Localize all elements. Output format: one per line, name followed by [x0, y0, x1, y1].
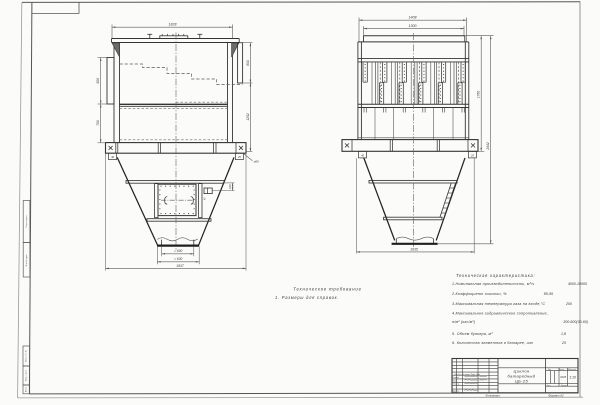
svg-text:Копировал:: Копировал: [486, 394, 501, 398]
svg-text:25: 25 [561, 341, 566, 345]
svg-text:н/м² (кгс/м²): н/м² (кгс/м²) [452, 320, 476, 324]
svg-text:Инв.№: Инв.№ [25, 387, 28, 393]
svg-text:2.Коэффициент очистки, %: 2.Коэффициент очистки, % [451, 292, 507, 296]
svg-text:Утв.: Утв. [453, 392, 457, 394]
svg-text:Масштаб: Масштаб [568, 369, 576, 371]
svg-text:1635: 1635 [410, 247, 418, 251]
svg-text:1828: 1828 [169, 23, 177, 27]
svg-text:600: 600 [96, 78, 100, 84]
svg-text:3.Максимальная температура газ: 3.Максимальная температура газа на входе… [452, 302, 545, 306]
svg-text:Взам. инв. №: Взам. инв. № [25, 350, 28, 362]
svg-text:1. Размеры для справок.: 1. Размеры для справок. [275, 295, 339, 300]
svg-text:2442: 2442 [486, 142, 490, 151]
svg-text:25: 25 [237, 156, 241, 159]
svg-text:Подп. и дата: Подп. и дата [26, 215, 28, 228]
svg-text:ЦБ-25: ЦБ-25 [515, 378, 529, 383]
svg-text:Пров.: Пров. [453, 380, 458, 382]
svg-text:Лист: Лист [547, 385, 551, 387]
svg-text:100: 100 [228, 184, 232, 189]
svg-text:4.Максимальное гидравлическое: 4.Максимальное гидравлическое сопротивле… [452, 311, 548, 315]
svg-text:0045: 0045 [560, 375, 566, 379]
svg-text:300-600(30-60): 300-600(30-60) [563, 320, 588, 324]
svg-text:Масса: Масса [559, 369, 564, 371]
svg-text:1937: 1937 [176, 264, 184, 268]
svg-text:Техническое требование: Техническое требование [293, 287, 362, 292]
svg-text:Инв. № дубл.: Инв. № дубл. [25, 253, 28, 266]
svg-text:700: 700 [96, 120, 100, 126]
svg-text:Формат А1: Формат А1 [548, 394, 564, 398]
svg-text:Т.контр.: Т.контр. [453, 384, 460, 386]
svg-text:200: 200 [565, 302, 572, 306]
svg-text:800: 800 [246, 60, 250, 66]
svg-text:6. Количество элементов в бата: 6. Количество элементов в батарее, шт [452, 341, 533, 345]
svg-text:5. Объем бункера, м³: 5. Объем бункера, м³ [452, 332, 493, 336]
svg-text:□ 600: □ 600 [174, 249, 182, 253]
svg-text:1408: 1408 [409, 16, 417, 20]
svg-text:⌀80: ⌀80 [254, 160, 259, 164]
svg-text:1242: 1242 [246, 113, 250, 121]
svg-text:Изм.Лист № докум. Подп. Дата: Изм.Лист № докум. Подп. Дата [454, 373, 480, 376]
svg-text:Техническая характеристика:: Техническая характеристика: [456, 273, 535, 278]
svg-text:Листов 1: Листов 1 [561, 385, 568, 387]
svg-text:1760: 1760 [477, 91, 481, 99]
svg-text:1.Номинальная производительнос: 1.Номинальная производительность, м³/ч [452, 282, 534, 286]
svg-text:1:10: 1:10 [569, 376, 576, 380]
svg-text:Подп. и дата: Подп. и дата [26, 369, 28, 381]
svg-text:4000-10000: 4000-10000 [568, 282, 587, 286]
svg-text:85-95: 85-95 [544, 292, 553, 296]
svg-text:1,8: 1,8 [561, 332, 566, 336]
svg-text:1300: 1300 [409, 24, 417, 28]
svg-text:Разраб.: Разраб. [453, 377, 460, 379]
svg-text:Лит.: Лит. [548, 369, 552, 371]
svg-text:□ 630: □ 630 [174, 257, 182, 261]
svg-text:25: 25 [470, 154, 474, 157]
